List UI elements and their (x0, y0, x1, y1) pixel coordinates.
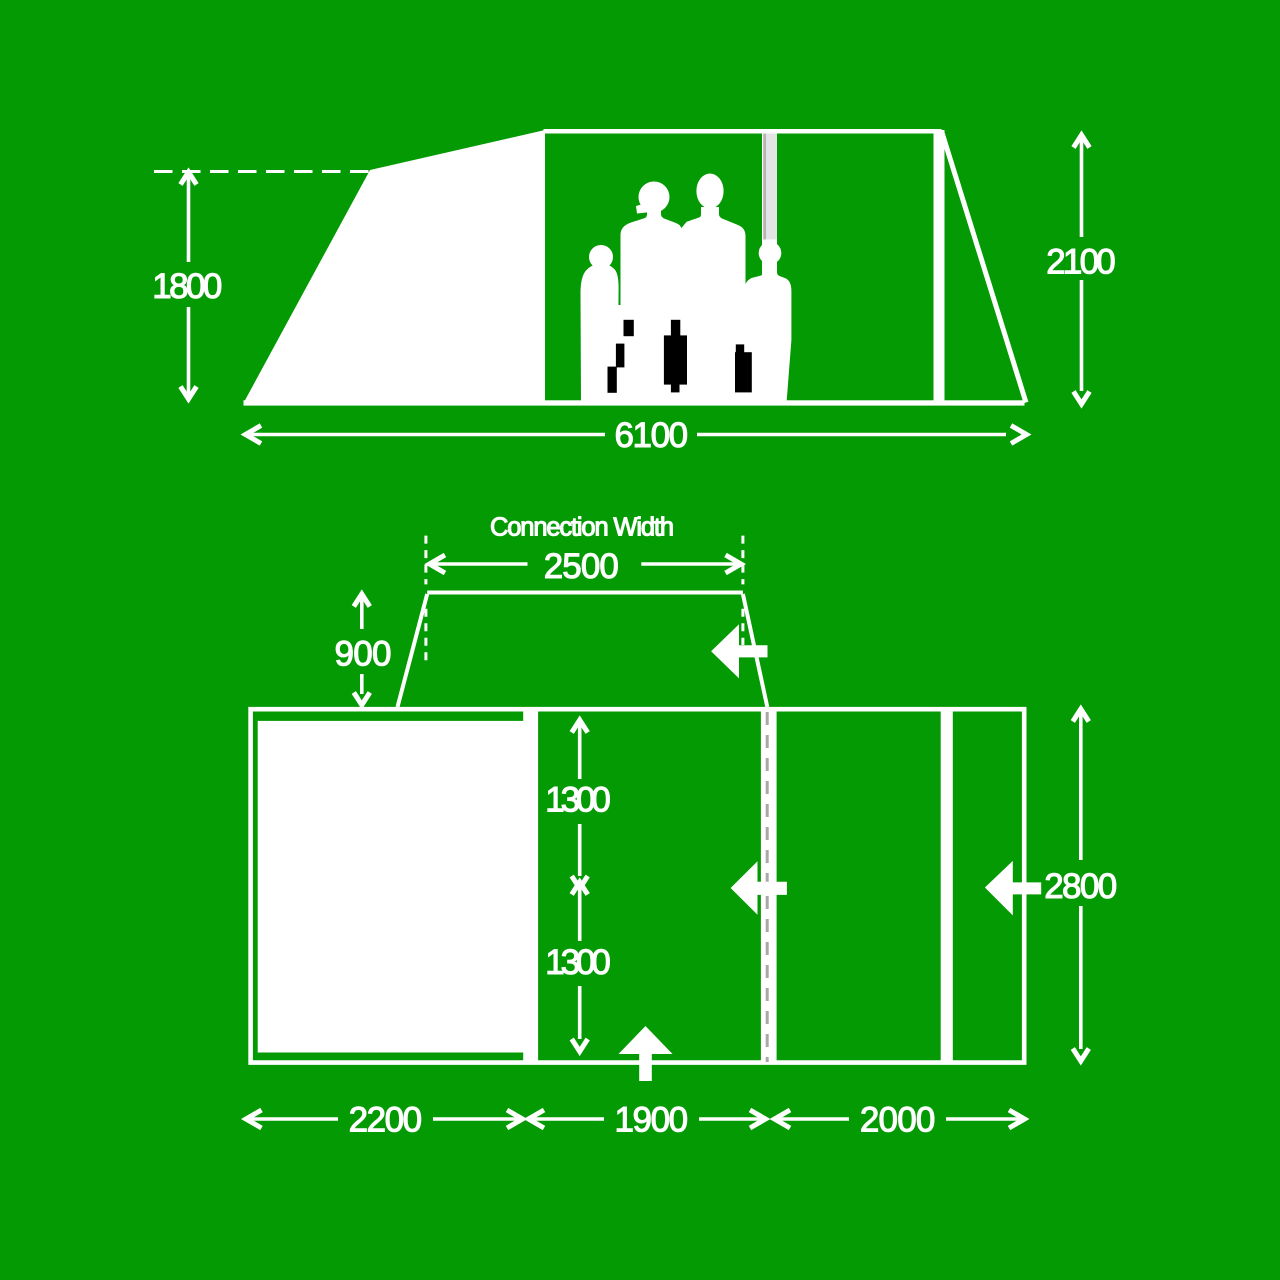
svg-text:Connection Width: Connection Width (490, 514, 674, 542)
svg-text:2800: 2800 (1044, 867, 1117, 906)
svg-text:2200: 2200 (349, 1101, 423, 1140)
svg-text:1300: 1300 (545, 943, 611, 982)
svg-text:1900: 1900 (615, 1101, 689, 1140)
svg-text:1300: 1300 (545, 781, 611, 820)
svg-text:1800: 1800 (152, 267, 222, 306)
svg-text:2000: 2000 (860, 1101, 936, 1140)
svg-text:2100: 2100 (1046, 243, 1116, 282)
svg-text:2500: 2500 (544, 547, 619, 586)
svg-text:6100: 6100 (615, 416, 689, 455)
svg-text:900: 900 (335, 635, 392, 674)
